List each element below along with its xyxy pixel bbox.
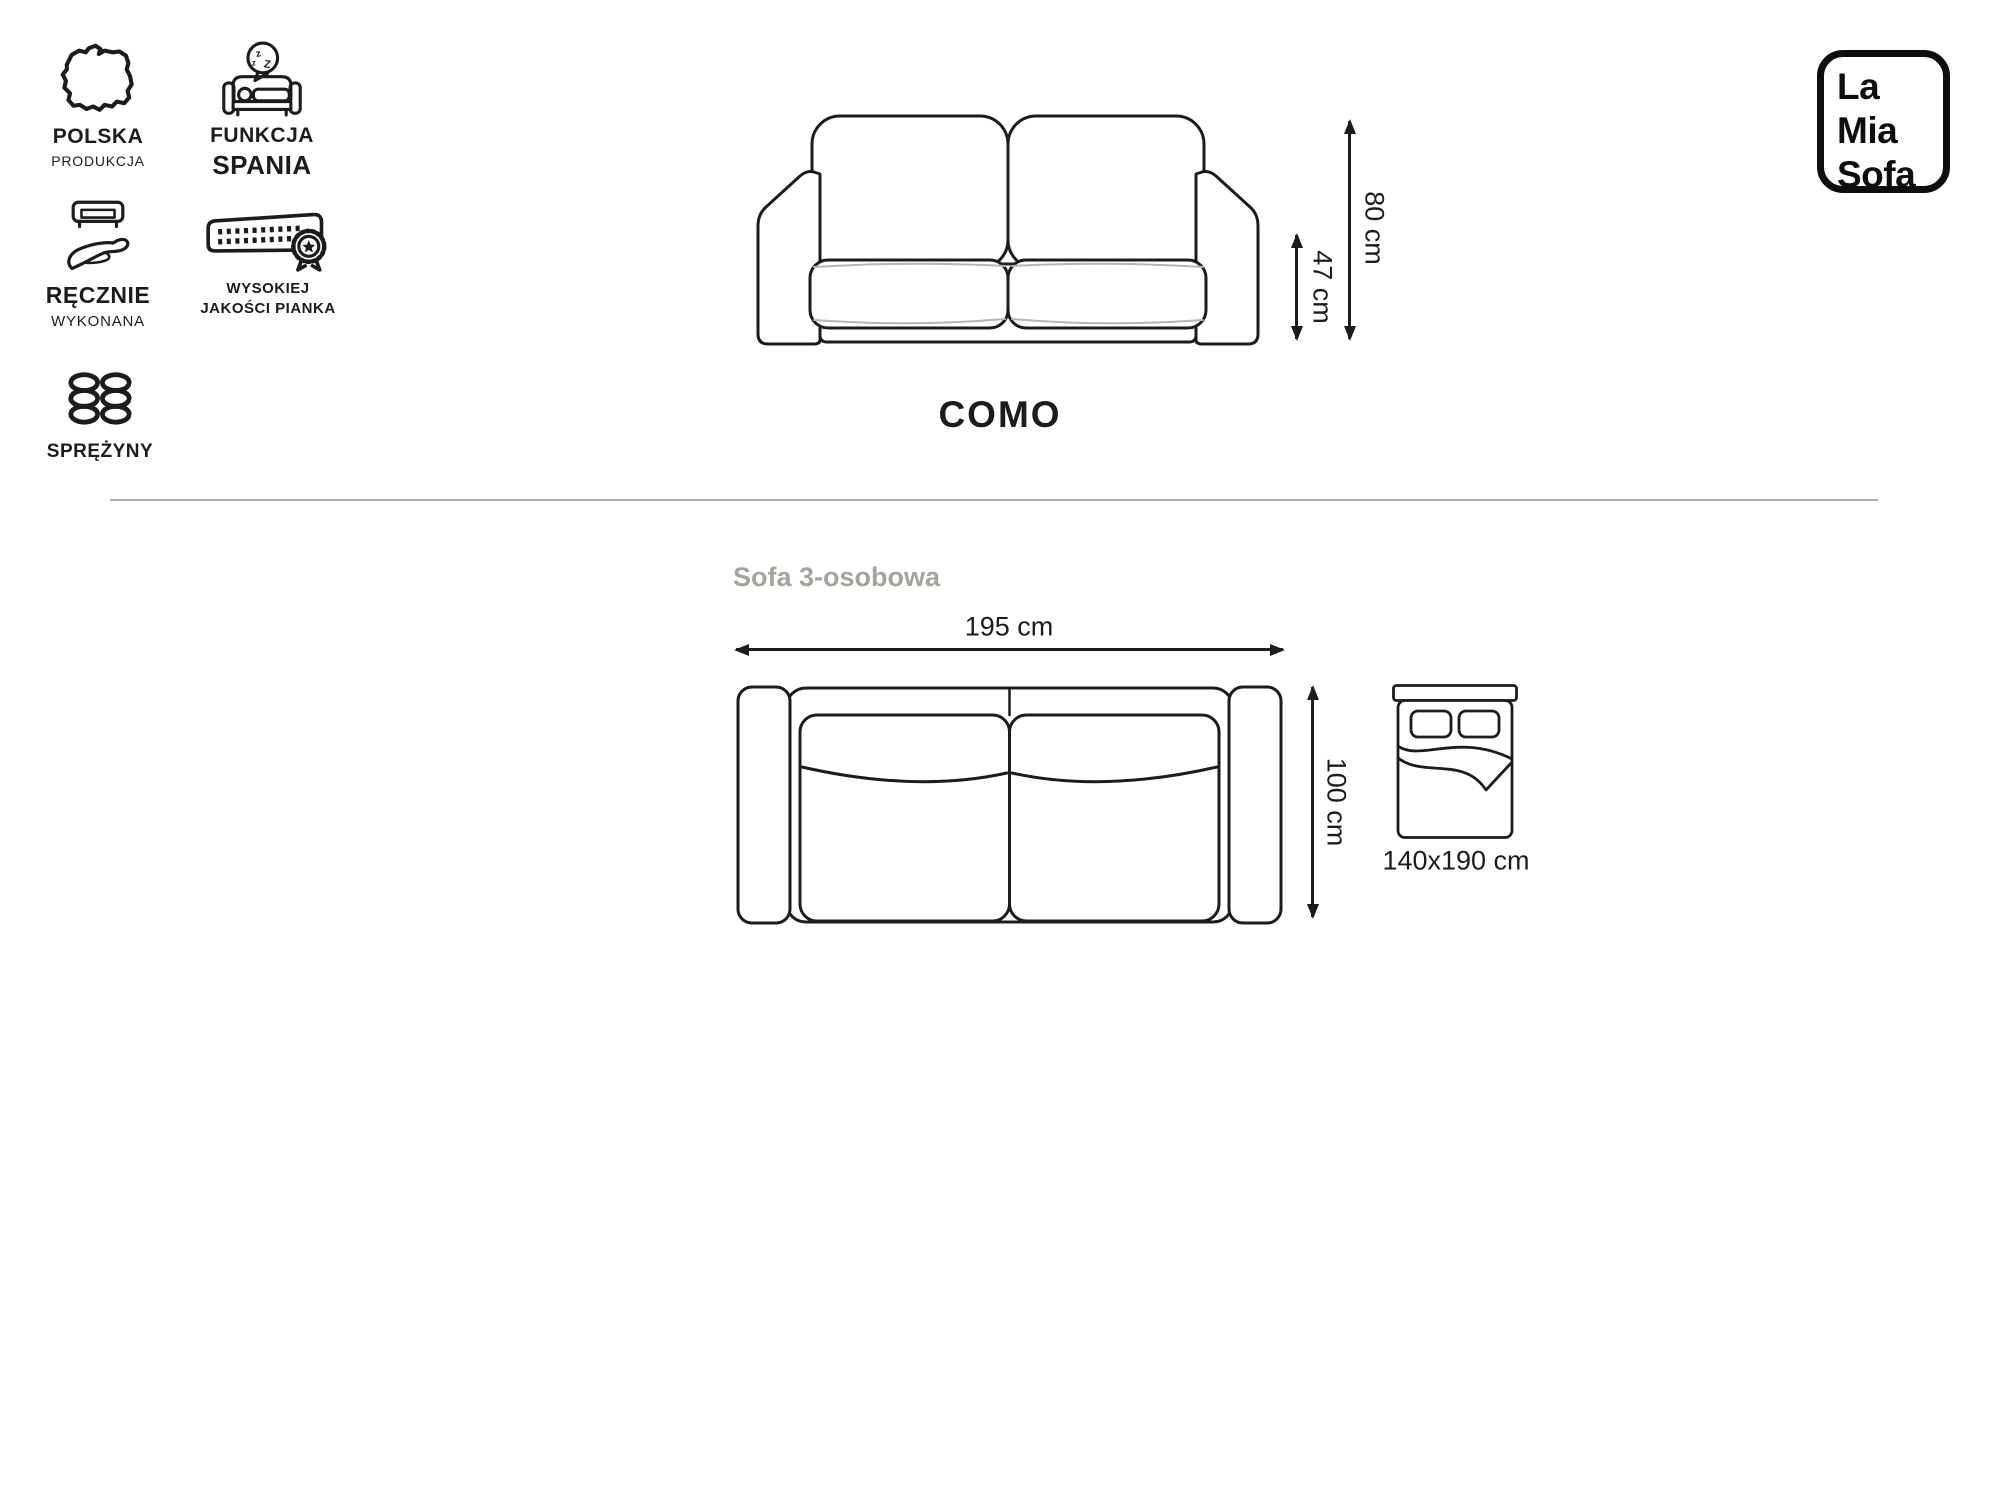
width-label: 195 cm (965, 612, 1054, 643)
badge-pianka-line2: JAKOŚCI PIANKA (188, 300, 348, 317)
total-height-label: 80 cm (1359, 191, 1390, 265)
sleep-function-icon: z z Z (219, 40, 305, 118)
sofa-front-view-drawing (756, 114, 1260, 346)
badge-funkcja-spania: z z Z FUNKCJA SPANIA (190, 40, 334, 181)
handmade-hand-sofa-icon (63, 198, 133, 274)
badge-sprezyny: SPRĘŻYNY (40, 372, 160, 463)
variant-label: Sofa 3-osobowa (733, 562, 940, 593)
product-spec-sheet: POLSKA PRODUKCJA z z Z FUNKCJA SPANIA (0, 0, 2000, 1500)
logo-line2: Mia (1837, 109, 1943, 153)
section-divider (110, 499, 1878, 501)
bed-top-view-icon (1392, 684, 1518, 840)
svg-text:z: z (255, 48, 262, 60)
product-title: COMO (938, 394, 1061, 436)
springs-icon (66, 372, 134, 432)
badge-sprezyny-line1: SPRĘŻYNY (40, 441, 160, 463)
foam-mattress-badge-icon (200, 208, 336, 272)
badge-polska-line1: POLSKA (37, 125, 159, 149)
logo-line3: Sofa (1837, 153, 1943, 197)
badge-pianka-line1: WYSOKIEJ (188, 280, 348, 297)
badge-funkcja-line2: SPANIA (190, 150, 334, 181)
logo-line1: La (1837, 65, 1943, 109)
badge-funkcja-line1: FUNKCJA (190, 124, 334, 148)
width-arrow (736, 648, 1283, 651)
sleeping-area-label: 140x190 cm (1382, 846, 1529, 877)
seat-height-arrow (1295, 235, 1298, 339)
poland-map-icon (56, 40, 140, 118)
badge-polska-line2: PRODUKCJA (37, 153, 159, 169)
sofa-top-view-drawing (736, 685, 1283, 925)
badge-polska-produkcja: POLSKA PRODUKCJA (37, 40, 159, 169)
total-height-arrow (1348, 121, 1351, 339)
badge-pianka: WYSOKIEJ JAKOŚCI PIANKA (188, 208, 348, 317)
la-mia-sofa-logo: La Mia Sofa (1817, 50, 1950, 193)
svg-text:z: z (252, 59, 256, 68)
depth-arrow (1311, 687, 1314, 917)
depth-label: 100 cm (1321, 758, 1352, 847)
seat-height-label: 47 cm (1307, 250, 1338, 324)
badge-recznie-wykonana: RĘCZNIE WYKONANA (35, 198, 161, 330)
badge-recznie-line2: WYKONANA (35, 313, 161, 330)
badge-recznie-line1: RĘCZNIE (35, 282, 161, 309)
